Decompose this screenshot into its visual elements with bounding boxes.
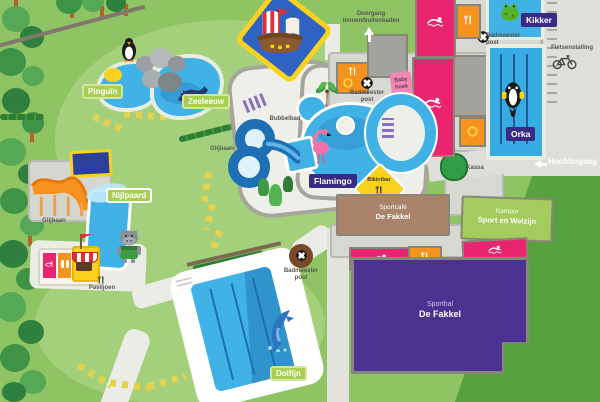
up-arrow-stem — [368, 35, 371, 42]
up-arrow-icon — [364, 27, 374, 35]
lifebuoy-icon-dolfijn — [295, 249, 308, 262]
flamingo-label: Flamingo — [309, 174, 357, 188]
sportcafe-name-1: Sportcafé — [338, 204, 448, 211]
changing-door — [43, 253, 56, 278]
utensils-icon — [347, 66, 358, 77]
counter-window — [76, 262, 92, 271]
flag-icon — [81, 234, 92, 239]
kikker-label: Kikker — [521, 13, 557, 27]
snack-north — [456, 4, 481, 39]
palm-tree-icon — [316, 82, 338, 108]
lifebuoy-icon-center — [360, 76, 374, 90]
orka-label: Orka — [506, 127, 535, 141]
bubbelbad-label: Bubbelbad — [262, 116, 308, 123]
frog-icon — [498, 2, 522, 22]
dolphin-icon — [262, 306, 296, 352]
penguin-icon — [120, 36, 138, 62]
utensils-icon — [96, 275, 106, 285]
bikinibar-label: Bikinibar — [356, 177, 402, 184]
glijbaan-label-slide: Glijbaan — [32, 218, 76, 225]
sun-icon — [342, 77, 354, 89]
restroom-icon — [61, 260, 64, 268]
small-trees — [258, 176, 294, 208]
pinguin-pool-sand — [104, 68, 122, 82]
sportcafe-name-2: De Fakkel — [338, 213, 448, 221]
baby-hoek-label: Babyhoek — [390, 76, 412, 91]
pinguin-label: Pinguïn — [82, 84, 123, 99]
gray-building-b — [452, 55, 489, 117]
badmeester-post-dolfijn: Badmeesterpost — [278, 268, 324, 282]
nijlpaard-label: Nijlpaard — [106, 188, 152, 203]
doorgang-label: Doorgangbinnen/buitenbaden — [328, 11, 414, 25]
glijbaan-label-loops: Glijbaan — [202, 146, 242, 153]
hippo-icon — [114, 226, 144, 264]
sporthal-building: Sporthal De Fakkel — [351, 257, 529, 374]
changing-rooms-north — [415, 0, 456, 58]
water-slide-icon — [30, 170, 92, 220]
kantoor-name-2: Sport en Welzijn — [463, 215, 551, 226]
pirate-ship-icon — [251, 4, 309, 56]
sun-icon — [466, 125, 479, 138]
sporthal-name-1: Sporthal — [351, 301, 529, 309]
swimmer-icon — [488, 245, 502, 255]
paviljoen-label: Paviljoen — [78, 285, 126, 292]
loungers-east — [382, 118, 394, 138]
swimmer-icon — [427, 16, 444, 27]
left-arrow-icon — [534, 160, 541, 168]
hedge-left — [0, 114, 44, 120]
lazy-river-ring — [366, 94, 436, 172]
swimmer-icon — [45, 261, 54, 267]
bicycle-icon — [552, 54, 578, 70]
sun-terrace — [459, 117, 486, 147]
fietsenstalling-label: Fietsenstalling — [544, 45, 600, 52]
zeeleeuw-label: Zeeleeuw — [182, 94, 230, 109]
kassa-label: Kassa — [460, 165, 490, 172]
hoofdingang-label: Hoofdingang — [548, 158, 600, 167]
toilet-door — [58, 253, 71, 278]
sportcafe-building: Sportcafé De Fakkel — [336, 194, 450, 236]
flamingo-icon — [308, 124, 334, 166]
orca-icon — [500, 80, 526, 118]
pool-island — [336, 116, 355, 135]
left-arrow-stem — [541, 163, 547, 166]
sporthal-name-2: De Fakkel — [351, 310, 529, 320]
dolfijn-label: Dolfijn — [270, 366, 307, 381]
utensils-icon — [462, 14, 474, 26]
kantoor-building: Kantoor Sport en Welzijn — [460, 195, 553, 242]
facility-map: Pinguïn Zeeleeuw Doorgangbinnen/buitenba… — [0, 0, 600, 402]
